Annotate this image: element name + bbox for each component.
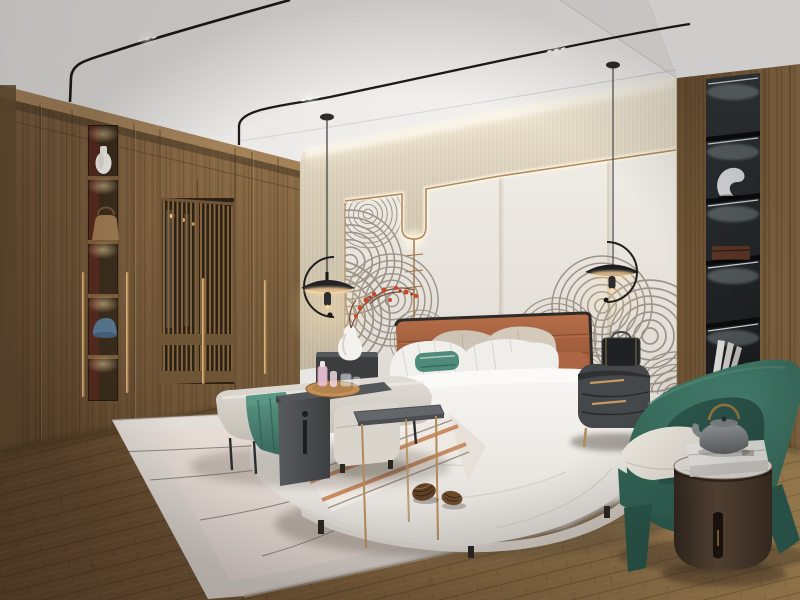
bedroom-photo: Modern Chinese style bedroom render: wal… [0,0,800,600]
vignette [0,0,800,600]
